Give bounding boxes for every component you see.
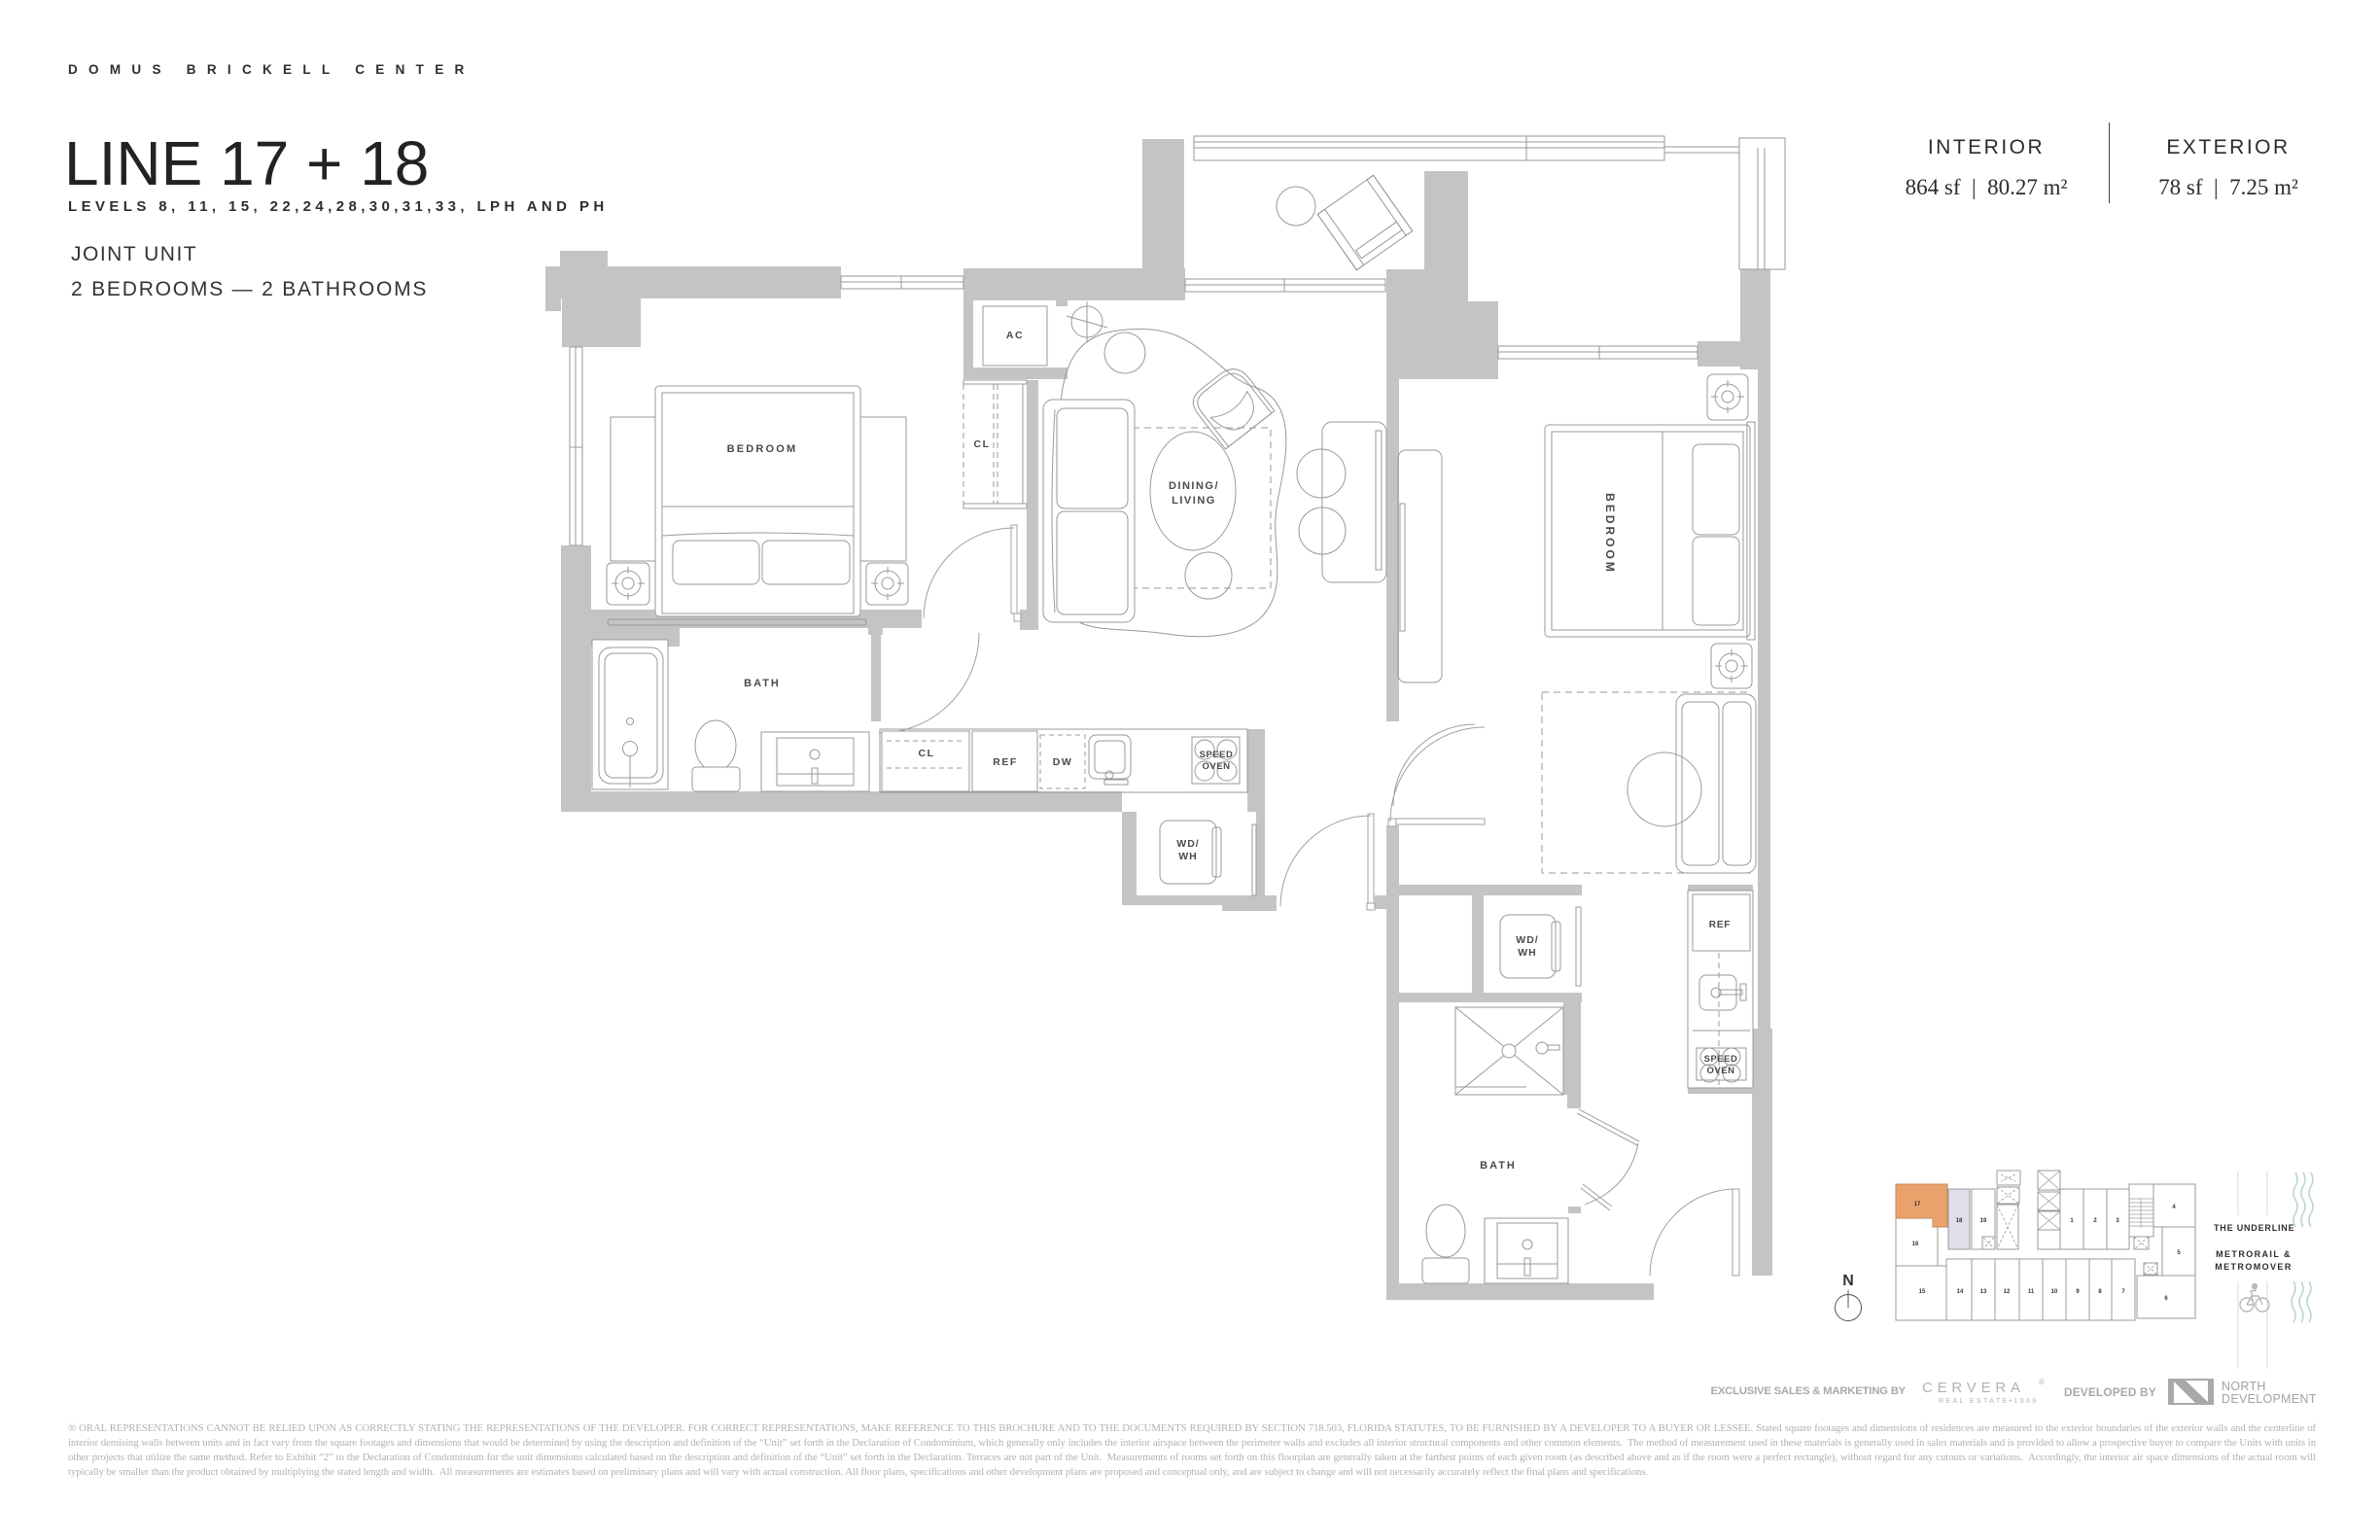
- svg-text:12: 12: [2004, 1289, 2011, 1295]
- svg-text:DINING/: DINING/: [1169, 480, 1219, 492]
- svg-text:CERVERA: CERVERA: [1922, 1380, 2025, 1396]
- svg-text:18: 18: [1956, 1218, 1963, 1224]
- svg-text:NORTH: NORTH: [2222, 1380, 2266, 1393]
- svg-text:THE UNDERLINE: THE UNDERLINE: [2214, 1223, 2294, 1233]
- svg-text:LIVING: LIVING: [1172, 495, 1216, 507]
- svg-text:CL: CL: [974, 438, 991, 450]
- svg-text:WD/: WD/: [1516, 934, 1538, 946]
- svg-text:WD/: WD/: [1176, 838, 1199, 850]
- svg-text:SPEED: SPEED: [1200, 750, 1234, 760]
- svg-text:15: 15: [1919, 1289, 1926, 1295]
- svg-text:10: 10: [2051, 1289, 2058, 1295]
- svg-text:REF: REF: [1709, 920, 1731, 930]
- svg-text:19: 19: [1980, 1218, 1987, 1224]
- svg-text:®: ®: [2039, 1378, 2045, 1386]
- svg-text:METROMOVER: METROMOVER: [2215, 1262, 2292, 1272]
- svg-text:16: 16: [1912, 1242, 1919, 1247]
- svg-text:METRORAIL &: METRORAIL &: [2216, 1249, 2292, 1259]
- svg-text:WH: WH: [1518, 947, 1537, 959]
- svg-text:CL: CL: [919, 748, 935, 759]
- svg-text:BATH: BATH: [744, 678, 781, 689]
- svg-text:13: 13: [1980, 1289, 1987, 1295]
- svg-text:REAL ESTATE•1969: REAL ESTATE•1969: [1939, 1398, 2039, 1405]
- svg-text:BEDROOM: BEDROOM: [1603, 493, 1617, 575]
- svg-text:17: 17: [1914, 1202, 1921, 1207]
- svg-text:OVEN: OVEN: [1203, 761, 1231, 772]
- svg-text:AC: AC: [1006, 330, 1024, 341]
- svg-text:14: 14: [1957, 1289, 1964, 1295]
- svg-text:BATH: BATH: [1480, 1160, 1517, 1172]
- svg-text:N: N: [1842, 1273, 1854, 1289]
- svg-text:DEVELOPMENT: DEVELOPMENT: [2222, 1392, 2317, 1406]
- svg-text:SPEED: SPEED: [1704, 1054, 1738, 1065]
- svg-text:11: 11: [2028, 1289, 2035, 1295]
- svg-text:REF: REF: [993, 756, 1018, 768]
- svg-text:OVEN: OVEN: [1707, 1066, 1735, 1076]
- svg-text:WH: WH: [1178, 851, 1198, 862]
- svg-text:BEDROOM: BEDROOM: [727, 443, 798, 455]
- svg-text:DW: DW: [1053, 756, 1073, 768]
